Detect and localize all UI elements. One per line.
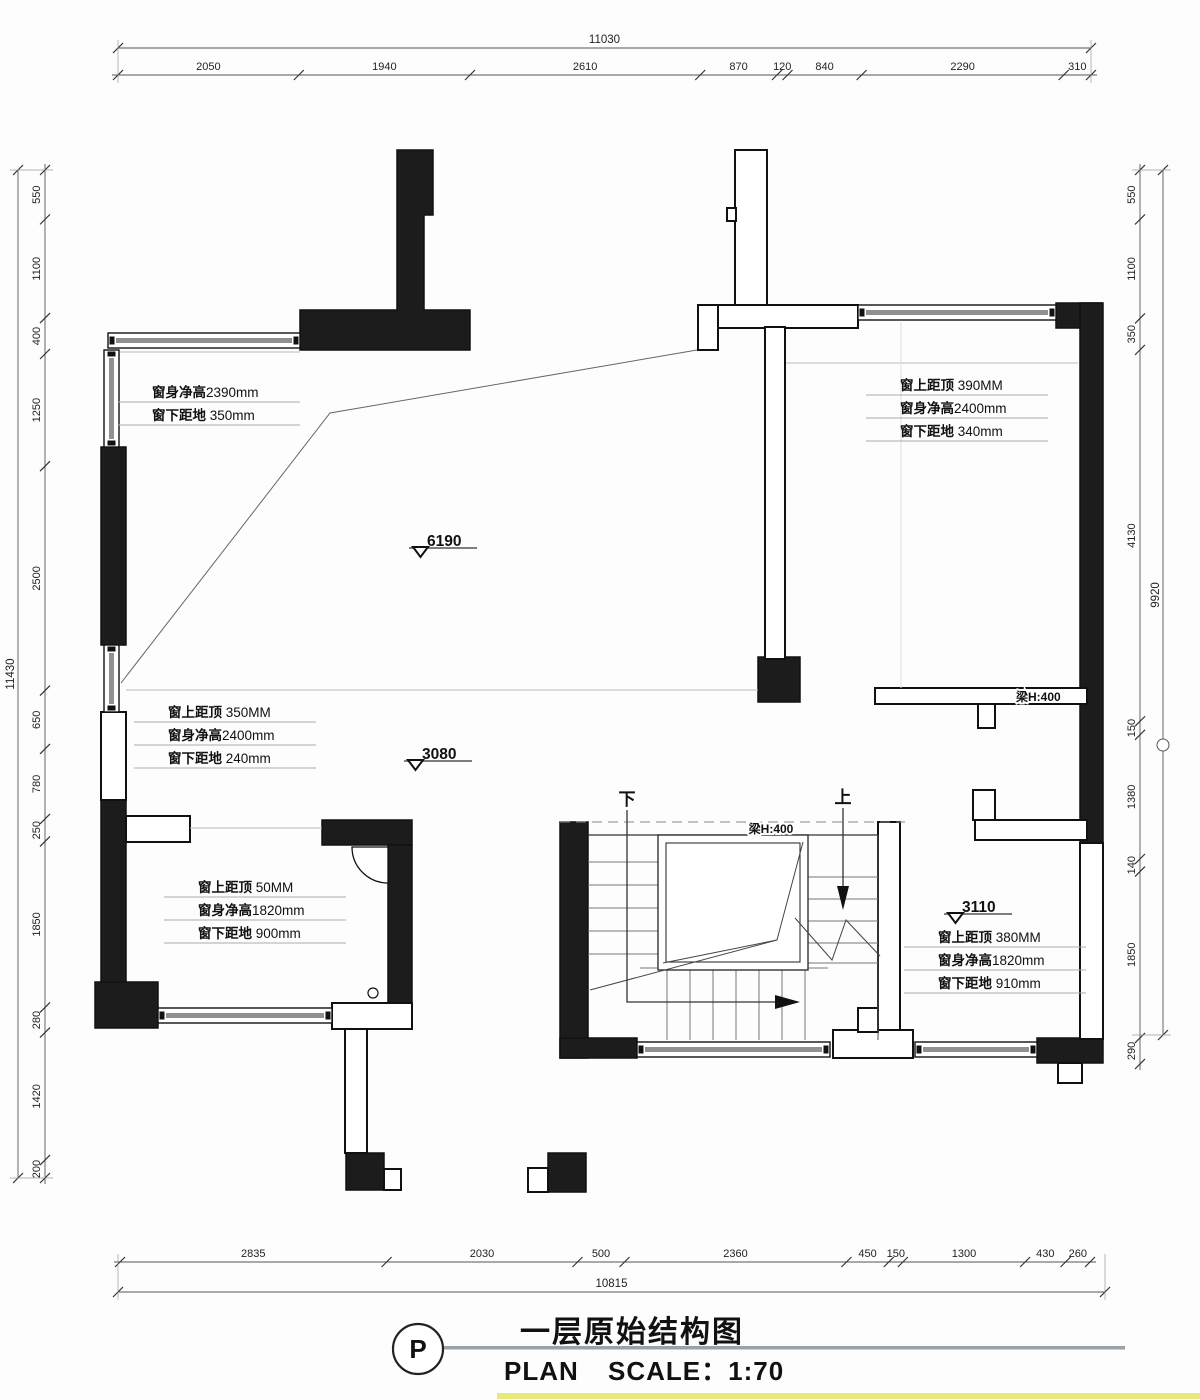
dim-label: 1940	[372, 61, 396, 73]
dim-chain-right: 55011003504130150138014018502909920	[1126, 164, 1171, 1070]
window-note-top-left: 窗身净高2390mm窗下距地 350mm	[118, 384, 300, 425]
window-note-bottom-right: 窗上距顶 380MM窗身净高1820mm窗下距地 910mm	[904, 929, 1086, 993]
window-symbol	[108, 333, 300, 348]
dim-label: 2610	[573, 61, 597, 73]
bottom-accent-bar	[497, 1393, 1200, 1399]
staircase	[560, 808, 905, 1040]
down-arrow	[775, 995, 800, 1009]
window-note-line: 窗上距顶 350MM	[168, 704, 271, 720]
dim-label: 150	[1126, 719, 1138, 737]
wall-br-cap	[1058, 1063, 1082, 1083]
dim-label: 140	[1126, 856, 1138, 874]
wall-stair-east	[878, 822, 900, 1040]
dim-label: 550	[31, 186, 43, 204]
beam-label-right: 梁H:400	[1015, 689, 1061, 704]
wall-br-top	[975, 820, 1087, 840]
dim-label: 2360	[723, 1248, 747, 1260]
window-note-line: 窗上距顶 50MM	[198, 879, 293, 895]
dim-chain-top: 205019402610870120840229031011030	[112, 34, 1097, 83]
wall-room-right	[388, 845, 412, 1010]
drawing-title: 一层原始结构图	[520, 1316, 744, 1349]
dim-total: 9920	[1150, 582, 1162, 608]
window-note-line: 窗身净高1820mm	[938, 952, 1045, 968]
wall-room-bar	[322, 820, 412, 845]
dimension-chains: 2050194026108701208402290310110302835203…	[5, 34, 1171, 1300]
dim-label: 200	[31, 1160, 43, 1178]
window-note-bottom-left: 窗上距顶 50MM窗身净高1820mm窗下距地 900mm	[164, 879, 346, 943]
window-note-line: 窗上距顶 390MM	[900, 377, 1003, 393]
window-note-top-right: 窗上距顶 390MM窗身净高2400mm窗下距地 340mm	[866, 377, 1048, 441]
dim-label: 650	[31, 711, 43, 729]
wall-bc-cap	[528, 1168, 548, 1192]
stair-up-label: 上	[835, 788, 852, 807]
window-note-line: 窗下距地 350mm	[152, 407, 255, 423]
window-symbol	[637, 1042, 830, 1057]
window-symbol	[915, 1042, 1037, 1057]
window-note-line: 窗身净高2400mm	[168, 727, 275, 743]
fixture-circle	[368, 988, 378, 998]
dim-label: 870	[729, 61, 747, 73]
wall-tr-notch	[727, 208, 736, 221]
dim-label: 1420	[31, 1084, 43, 1108]
dim-chain-bottom: 283520305002360450150130043026010815	[113, 1248, 1110, 1300]
dim-chain-left: 5501100400125025006507802501850280142020…	[5, 164, 53, 1184]
window-symbol	[104, 350, 119, 447]
level-mark-3080: 3080	[404, 746, 472, 770]
window-note-line: 窗身净高2390mm	[152, 384, 259, 400]
wall-bl-vert	[345, 1029, 367, 1153]
dim-label: 450	[858, 1248, 876, 1260]
wall-bl-piece	[332, 1003, 412, 1029]
dim-label: 2050	[196, 61, 220, 73]
dim-label: 1100	[1126, 257, 1138, 281]
wall-divider-block	[758, 657, 800, 702]
dim-label: 1850	[31, 912, 43, 936]
wall-bl-cap	[384, 1169, 401, 1190]
stair-down-label: 下	[619, 790, 636, 809]
wall-beam-tee	[978, 704, 995, 728]
window-note-line: 窗身净高2400mm	[900, 400, 1007, 416]
window-symbol	[104, 645, 119, 712]
level-mark-6190: 6190	[409, 533, 477, 557]
dim-label: 1300	[952, 1248, 976, 1260]
wall-bc-tee	[858, 1008, 878, 1032]
window-note-line: 窗下距地 240mm	[168, 750, 271, 766]
dim-label: 260	[1069, 1248, 1087, 1260]
wall-divider	[765, 327, 785, 659]
wall-tr-end	[698, 305, 718, 350]
dim-label: 250	[31, 821, 43, 839]
window-note-mid-left: 窗上距顶 350MM窗身净高2400mm窗下距地 240mm	[134, 704, 316, 768]
wall-bc-piece	[833, 1030, 913, 1058]
dim-total: 11430	[5, 658, 17, 689]
scale-label: SCALE：1:70	[608, 1356, 784, 1386]
level-mark-3110: 3110	[944, 899, 1012, 923]
dim-label: 430	[1036, 1248, 1054, 1260]
window-note-line: 窗上距顶 380MM	[938, 929, 1041, 945]
wall-bottom-right-corner	[1037, 1038, 1103, 1063]
wall-tr-horiz	[698, 305, 858, 328]
dim-label: 150	[887, 1248, 905, 1260]
wall-stair-foot	[560, 1038, 637, 1058]
level-value: 6190	[427, 533, 461, 550]
dim-label: 1850	[1126, 942, 1138, 966]
window-note-line: 窗身净高1820mm	[198, 902, 305, 918]
stair-landing	[658, 835, 808, 970]
dim-label: 290	[1126, 1042, 1138, 1060]
floorplan-sheet: 下 上 梁H:400 梁H:400 2050194026108701208402…	[0, 0, 1200, 1400]
dim-total: 10815	[596, 1278, 628, 1290]
dim-total: 11030	[589, 34, 620, 46]
dim-label: 4130	[1126, 523, 1138, 547]
wall-left-foot	[95, 982, 158, 1028]
window-symbol	[158, 1008, 332, 1023]
wall-stair-west	[560, 822, 588, 1058]
plan-tag-letter: P	[409, 1334, 426, 1364]
dim-label: 2500	[31, 566, 43, 590]
dim-label: 780	[31, 775, 43, 793]
window-note-line: 窗下距地 340mm	[900, 423, 1003, 439]
dim-label: 280	[31, 1011, 43, 1029]
dim-label: 400	[31, 327, 43, 345]
dim-label: 1250	[31, 398, 43, 422]
door-swing	[352, 847, 388, 883]
dim-label: 310	[1068, 61, 1086, 73]
window-note-line: 窗下距地 910mm	[938, 975, 1041, 991]
wall-pier-bl	[346, 1153, 384, 1190]
dim-label: 350	[1126, 325, 1138, 343]
wall-left-upper	[101, 447, 126, 645]
dim-label: 840	[815, 61, 833, 73]
dim-label: 550	[1126, 186, 1138, 204]
dim-label: 1380	[1126, 785, 1138, 809]
wall-br-notch	[973, 790, 995, 820]
dim-label: 2030	[470, 1248, 494, 1260]
floorplan-canvas: 下 上 梁H:400 梁H:400 2050194026108701208402…	[0, 0, 1200, 1400]
beam-label-stair: 梁H:400	[748, 821, 794, 836]
plan-word: PLAN	[504, 1356, 579, 1386]
wall-right-lower	[1080, 843, 1103, 1039]
window-annotations: 窗身净高2390mm窗下距地 350mm窗上距顶 390MM窗身净高2400mm…	[118, 377, 1086, 993]
wall-left-hollow	[101, 712, 126, 800]
dim-label: 500	[592, 1248, 610, 1260]
title-block: P 一层原始结构图 PLAN SCALE：1:70	[393, 1316, 1200, 1399]
level-value: 3080	[422, 746, 456, 763]
level-value: 3110	[962, 899, 996, 916]
wall-right-upper	[1080, 303, 1103, 843]
wall-pier-bc	[548, 1153, 586, 1192]
up-arrow	[837, 886, 849, 910]
window-note-line: 窗下距地 900mm	[198, 925, 301, 941]
dim-label: 120	[773, 61, 791, 73]
wall-top-left-protrusion	[300, 150, 470, 350]
wall-tr-vert	[735, 150, 767, 310]
dim-label: 2835	[241, 1248, 265, 1260]
dim-label: 2290	[950, 61, 974, 73]
dim-label: 1100	[31, 257, 43, 281]
window-symbol	[858, 305, 1056, 320]
wall-left-stub	[126, 816, 190, 842]
